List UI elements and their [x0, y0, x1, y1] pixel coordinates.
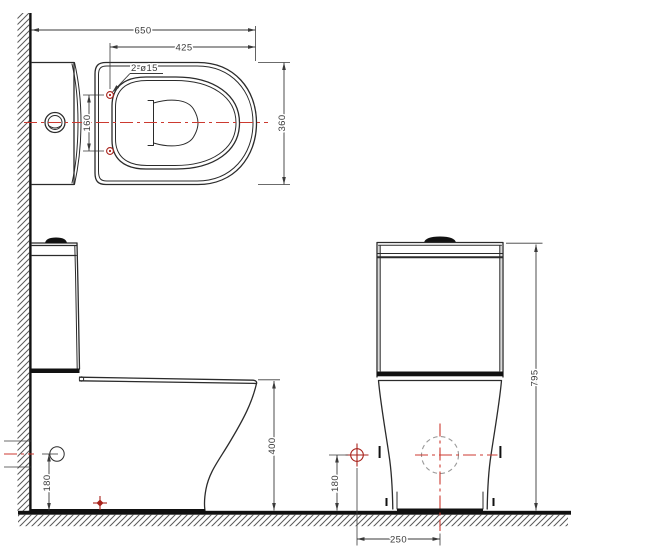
wall-hatch — [18, 13, 30, 511]
cistern-front-outline — [377, 237, 503, 381]
dim-425-label: 425 — [175, 43, 192, 54]
seat-fixing-hole-top — [107, 92, 114, 99]
dim-650-label: 650 — [134, 26, 151, 37]
dim-160-label: 160 — [82, 114, 93, 131]
dim-180-front-label: 180 — [330, 475, 341, 492]
dim-inlet-height-front: 180 — [329, 455, 348, 511]
cistern-top-outline — [32, 63, 82, 185]
dim-250-label: 250 — [390, 535, 407, 546]
dim-795-label: 795 — [530, 369, 541, 386]
seat-side-outline — [79, 377, 256, 384]
technical-drawing-page: 650 425 2-ø15 160 360 — [0, 0, 651, 552]
front-elevation-view: 180 250 795 — [329, 237, 543, 546]
pedestal-base-front — [397, 509, 483, 513]
cistern-base-band-front — [377, 372, 503, 377]
cistern-side-outline — [32, 238, 80, 374]
floor-marker-cross — [93, 496, 107, 510]
cistern-lid-curve-inner — [72, 64, 78, 183]
flush-button-front — [424, 237, 456, 243]
dim-180-side-label: 180 — [42, 474, 53, 491]
dim-360-label: 360 — [277, 114, 288, 131]
foot-slot-left — [386, 498, 388, 506]
seat-holes-note-label: 2-ø15 — [131, 63, 158, 74]
dim-bowl-width: 360 — [258, 63, 290, 185]
dim-overall-depth: 650 — [32, 26, 256, 62]
floor-hatch — [18, 515, 568, 527]
dim-total-height: 795 — [506, 243, 543, 510]
dim-inlet-offset: 250 — [357, 468, 440, 546]
bowl-base-side — [32, 509, 206, 513]
side-elevation-view: 180 400 — [4, 238, 280, 514]
foot-slot-right — [493, 498, 495, 506]
pedestal-front-outline — [379, 381, 502, 513]
water-inlet-target-front — [346, 444, 369, 467]
flush-button-side — [45, 238, 67, 244]
wall-section — [18, 13, 32, 513]
side-fixing-hole-left — [379, 446, 381, 458]
dim-seat-height: 400 — [258, 380, 280, 511]
dim-400-label: 400 — [267, 437, 278, 454]
side-fixing-hole-right — [499, 446, 501, 458]
wall-edge-line — [29, 13, 31, 513]
dim-inlet-height-side: 180 — [42, 454, 58, 511]
bowl-front-curve-side — [204, 384, 256, 511]
top-plan-view: 650 425 2-ø15 160 360 — [24, 26, 290, 185]
technical-drawing: 650 425 2-ø15 160 360 — [0, 0, 651, 552]
cistern-base-band-side — [32, 369, 80, 374]
seat-fixing-hole-bottom — [107, 148, 114, 155]
